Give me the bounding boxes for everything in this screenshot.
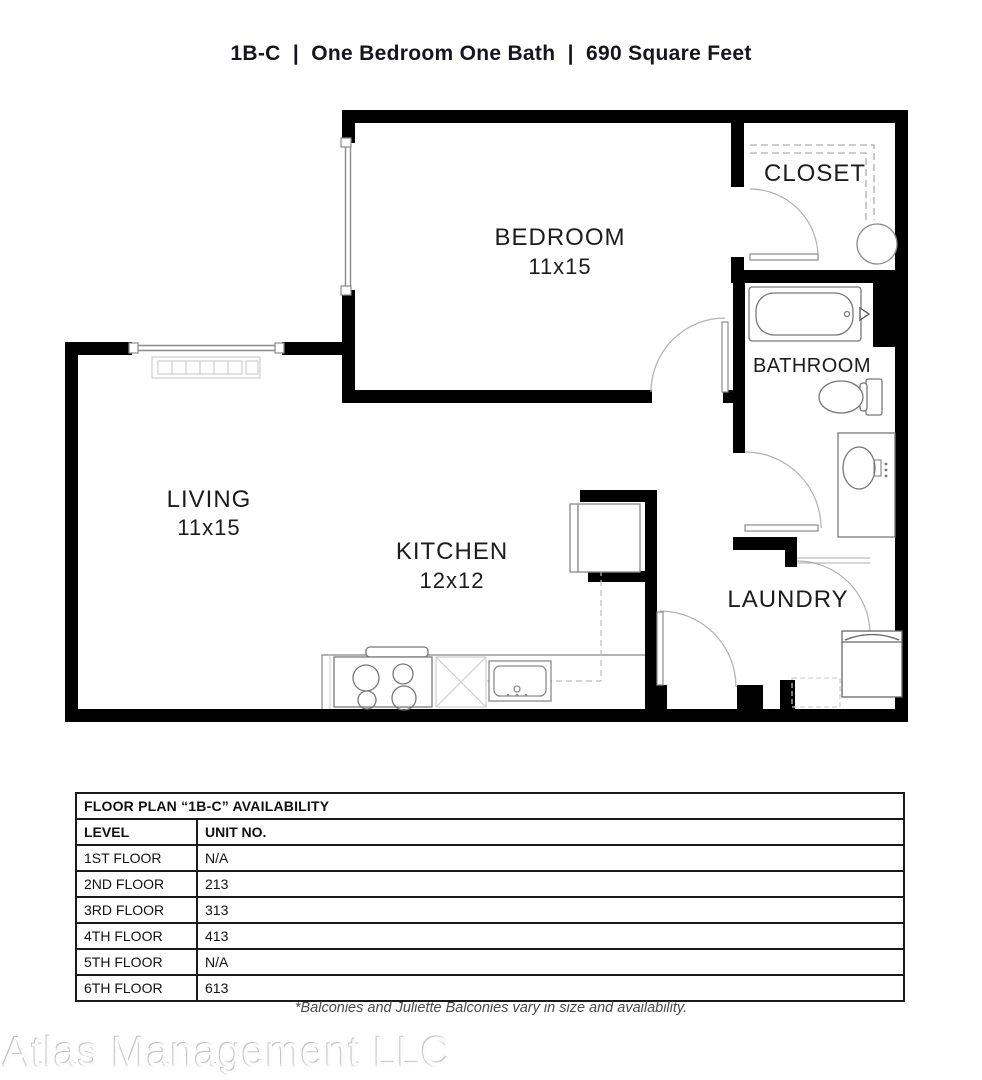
bathroom-door-leaf	[745, 525, 818, 531]
table-row: 3RD FLOOR 313	[76, 897, 904, 923]
wall-bathroom-south-jog	[785, 537, 797, 567]
bedroom-dims: 11x15	[528, 254, 591, 279]
table-row: 5TH FLOOR N/A	[76, 949, 904, 975]
table-row: 4TH FLOOR 413	[76, 923, 904, 949]
level-cell: 6TH FLOOR	[76, 975, 197, 1001]
water-heater	[857, 224, 897, 264]
toilet	[819, 379, 882, 415]
refrigerator	[570, 504, 640, 572]
wall-closet-a	[731, 110, 744, 187]
wall-left	[65, 342, 78, 722]
washer	[842, 631, 902, 697]
unit-cell: 413	[197, 923, 904, 949]
wall-kitchen-stub-mid	[588, 571, 657, 582]
table-row: 2ND FLOOR 213	[76, 871, 904, 897]
level-cell: 1ST FLOOR	[76, 845, 197, 871]
wall-top	[345, 110, 908, 123]
col-header-level: LEVEL	[76, 819, 197, 845]
bedroom-door	[651, 318, 728, 392]
wall-bathroom-top	[731, 270, 895, 283]
unit-cell: N/A	[197, 845, 904, 871]
level-cell: 4TH FLOOR	[76, 923, 197, 949]
table-title-row: FLOOR PLAN “1B-C” AVAILABILITY	[76, 793, 904, 819]
wall-bedroom-bottom	[342, 390, 652, 403]
closet-door	[750, 189, 818, 260]
table-header-row: LEVEL UNIT NO.	[76, 819, 904, 845]
floor-plan: BEDROOM 11x15 CLOSET BATHROOM LIVING 11x…	[0, 0, 982, 760]
laundry-label: LAUNDRY	[727, 586, 848, 613]
living-window	[129, 343, 284, 353]
wall-right	[895, 110, 908, 722]
unit-cell: 613	[197, 975, 904, 1001]
laundry-door	[657, 611, 736, 687]
bedroom-window	[341, 138, 351, 295]
availability-table: FLOOR PLAN “1B-C” AVAILABILITY LEVEL UNI…	[75, 792, 905, 1002]
balcony-footnote: *Balconies and Juliette Balconies vary i…	[0, 1000, 982, 1016]
wall-laundry-stub	[737, 685, 763, 709]
wall-bathroom-west	[733, 283, 745, 453]
baseboard-heater	[152, 357, 260, 378]
bedroom-door-leaf	[722, 322, 728, 392]
vanity-sink	[838, 433, 895, 537]
stove	[334, 647, 432, 710]
unit-cell: 213	[197, 871, 904, 897]
living-dims: 11x15	[177, 515, 240, 540]
laundry-door-leaf	[657, 612, 663, 685]
wall-laundry-bar	[780, 680, 795, 722]
wall-kitchen-corner	[645, 685, 667, 709]
kitchen-sink	[489, 661, 551, 701]
closet-door-leaf	[750, 254, 818, 260]
table-row: 1ST FLOOR N/A	[76, 845, 904, 871]
kitchen-label: KITCHEN	[396, 538, 508, 565]
wall-bedroom-left-b	[342, 290, 355, 402]
level-cell: 5TH FLOOR	[76, 949, 197, 975]
tub-spout-icon	[860, 308, 869, 320]
wall-tub-chase	[873, 277, 895, 347]
unit-cell: 313	[197, 897, 904, 923]
walls	[65, 110, 908, 722]
dishwasher	[436, 657, 486, 707]
bathroom-door	[745, 452, 821, 531]
closet-label: CLOSET	[764, 160, 866, 187]
kitchen-dims: 12x12	[420, 568, 485, 593]
wall-living-top-a	[65, 342, 132, 355]
watermark: Atlas Management LLC	[3, 1028, 451, 1075]
living-label: LIVING	[167, 486, 252, 513]
table-row: 6TH FLOOR 613	[76, 975, 904, 1001]
level-cell: 3RD FLOOR	[76, 897, 197, 923]
bathtub	[749, 287, 869, 341]
bathroom-label: BATHROOM	[753, 355, 871, 377]
bedroom-label: BEDROOM	[494, 224, 625, 251]
unit-cell: N/A	[197, 949, 904, 975]
level-cell: 2ND FLOOR	[76, 871, 197, 897]
col-header-unit: UNIT NO.	[197, 819, 904, 845]
dryer-space-dashed	[792, 678, 840, 707]
table-title: FLOOR PLAN “1B-C” AVAILABILITY	[76, 793, 904, 819]
